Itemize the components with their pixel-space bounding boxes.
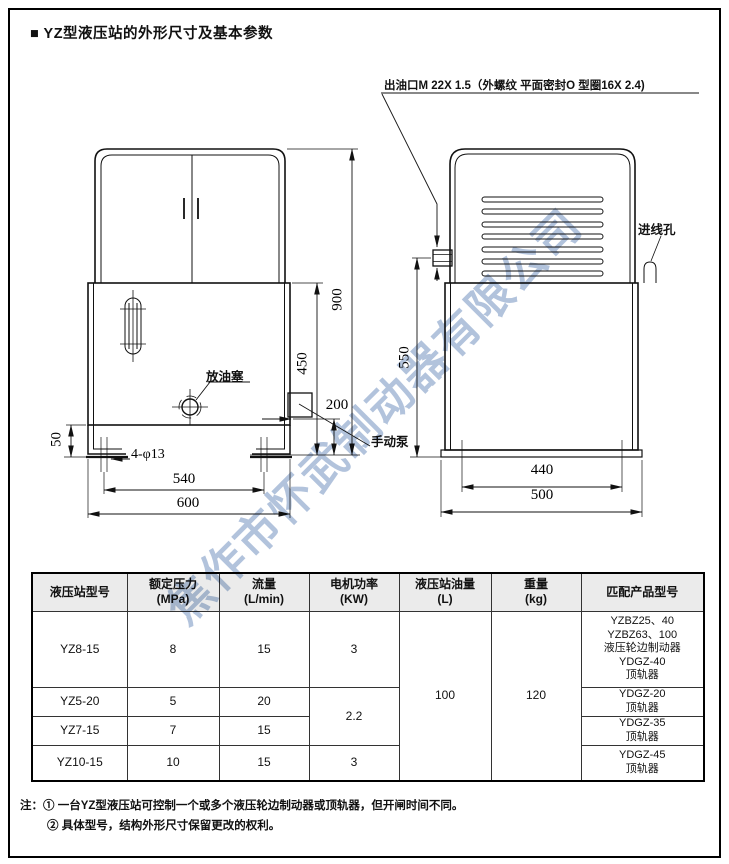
cell-weight-shared: 120 [491, 611, 581, 781]
cell-power-12: 2.2 [309, 687, 399, 745]
cell-flow-1: 20 [219, 687, 309, 716]
footnote-2: ② 具体型号，结构外形尺寸保留更改的权利。 [20, 816, 463, 836]
dim-500: 500 [512, 487, 572, 504]
cell-match-0: YZBZ25、40 YZBZ63、100 液压轮边制动器 YDGZ-40 顶轨器 [581, 611, 704, 687]
cell-model-0: YZ8-15 [32, 611, 127, 687]
drain-plug-label: 放油塞 [206, 366, 244, 385]
cell-power-0: 3 [309, 611, 399, 687]
dim-440: 440 [512, 462, 572, 479]
dim-600: 600 [158, 495, 218, 512]
header-flow: 流量(L/min) [219, 573, 309, 611]
dim-540: 540 [154, 471, 214, 488]
cell-oil-shared: 100 [399, 611, 491, 781]
footnote-1: 注：① 一台YZ型液压站可控制一个或多个液压轮边制动器或顶轨器，但开闸时间不同。 [20, 796, 463, 816]
cell-match-3: YDGZ-45 顶轨器 [581, 745, 704, 781]
header-match: 匹配产品型号 [581, 573, 704, 611]
dim-50: 50 [49, 410, 66, 470]
footnotes: 注：① 一台YZ型液压站可控制一个或多个液压轮边制动器或顶轨器，但开闸时间不同。… [20, 796, 463, 836]
dim-450: 450 [295, 334, 312, 394]
cell-pressure-3: 10 [127, 745, 219, 781]
hand-pump-label: 手动泵 [371, 431, 409, 450]
cell-model-2: YZ7-15 [32, 716, 127, 745]
cell-pressure-2: 7 [127, 716, 219, 745]
spec-table: 液压站型号 额定压力(MPa) 流量(L/min) 电机功率(KW) 液压站油量… [31, 572, 705, 782]
table-row: YZ8-15 8 15 3 100 120 YZBZ25、40 YZBZ63、1… [32, 611, 704, 687]
cell-model-1: YZ5-20 [32, 687, 127, 716]
header-pressure: 额定压力(MPa) [127, 573, 219, 611]
side-view [382, 94, 661, 517]
cable-hole-label: 进线孔 [638, 219, 676, 238]
header-power: 电机功率(KW) [309, 573, 399, 611]
outlet-annotation: 出油口M 22X 1.5（外螺纹 平面密封O 型圈16X 2.4) [384, 77, 645, 93]
header-model: 液压站型号 [32, 573, 127, 611]
cell-flow-2: 15 [219, 716, 309, 745]
cell-power-3: 3 [309, 745, 399, 781]
cell-match-1: YDGZ-20 顶轨器 [581, 687, 704, 716]
cell-pressure-1: 5 [127, 687, 219, 716]
dim-550: 550 [397, 328, 414, 388]
cell-match-2: YDGZ-35 顶轨器 [581, 716, 704, 745]
front-view [64, 149, 370, 518]
cell-flow-0: 15 [219, 611, 309, 687]
dim-900: 900 [330, 270, 347, 330]
cell-model-3: YZ10-15 [32, 745, 127, 781]
dim-200: 200 [307, 397, 367, 414]
mount-holes-label: 4-φ13 [131, 447, 183, 463]
catalog-page: ■ YZ型液压站的外形尺寸及基本参数 [0, 0, 729, 864]
table-row: YZ5-20 5 20 2.2 YDGZ-20 顶轨器 [32, 687, 704, 716]
cell-pressure-0: 8 [127, 611, 219, 687]
header-weight: 重量(kg) [491, 573, 581, 611]
header-oil: 液压站油量(L) [399, 573, 491, 611]
cell-flow-3: 15 [219, 745, 309, 781]
table-row: YZ10-15 10 15 3 YDGZ-45 顶轨器 [32, 745, 704, 781]
